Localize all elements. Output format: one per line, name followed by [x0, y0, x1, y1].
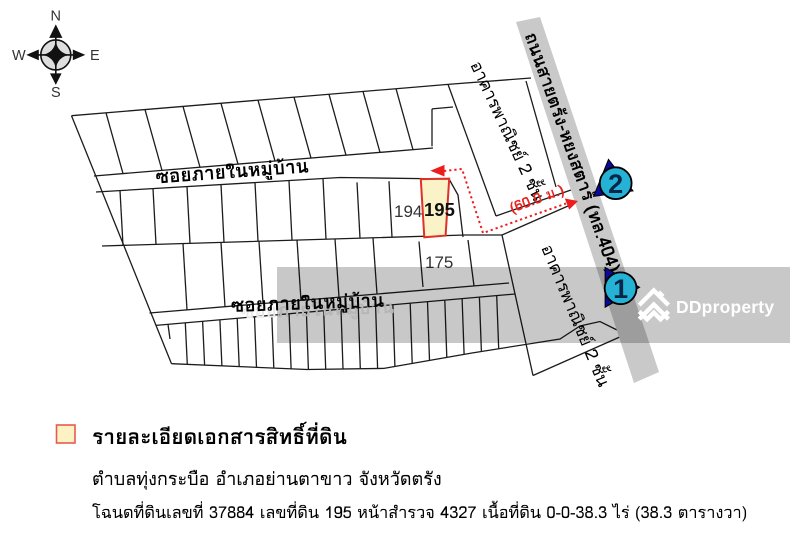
svg-text:N: N — [51, 9, 61, 25]
svg-text:E: E — [90, 48, 100, 64]
svg-text:S: S — [51, 85, 61, 101]
svg-text:2: 2 — [608, 169, 623, 199]
svg-text:195: 195 — [424, 199, 455, 220]
svg-text:DDproperty: DDproperty — [676, 297, 774, 317]
svg-text:1: 1 — [613, 274, 628, 304]
svg-text:194: 194 — [394, 202, 422, 221]
svg-text:W: W — [12, 48, 26, 64]
